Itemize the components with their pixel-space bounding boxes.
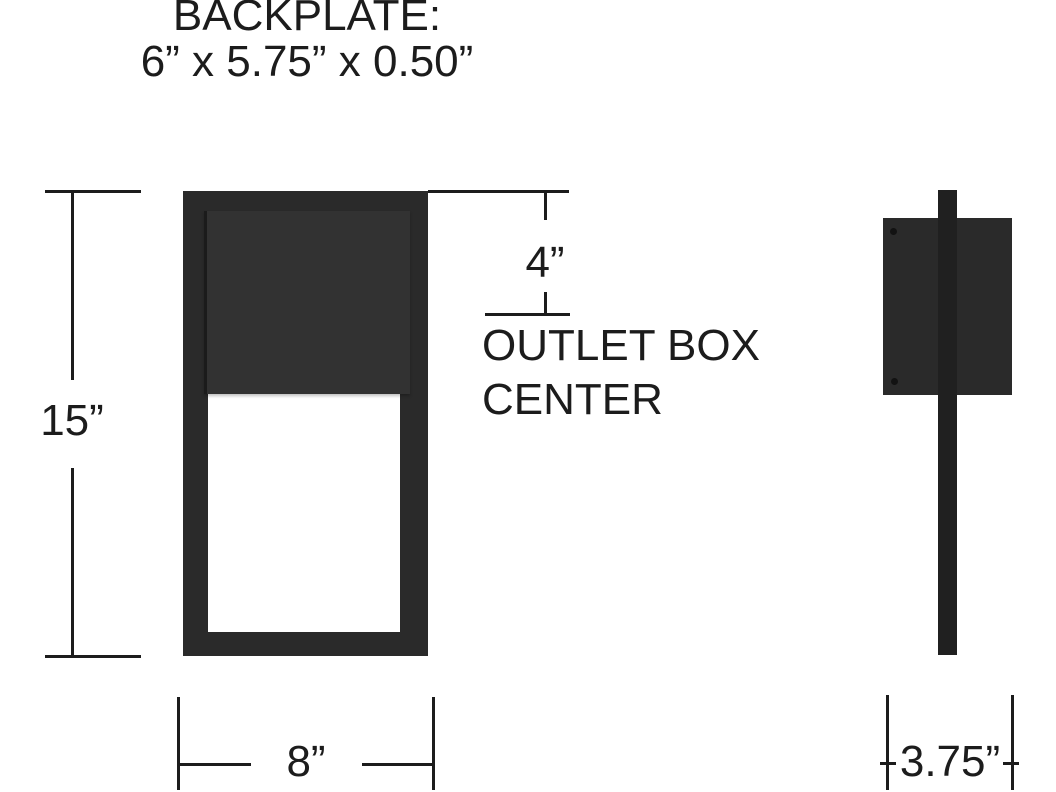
backplate-title-line2: 6” x 5.75” x 0.50” <box>95 39 519 85</box>
outlet-center-line <box>485 313 570 316</box>
dimension-diagram: BACKPLATE: 6” x 5.75” x 0.50” 15” 4” OUT… <box>0 0 1056 792</box>
backplate-title: BACKPLATE: 6” x 5.75” x 0.50” <box>95 0 519 85</box>
dim-height-tick-bottom <box>45 655 141 658</box>
front-view-shield-panel <box>204 211 410 394</box>
dim-offset-line-top <box>428 190 569 193</box>
dim-height-tick-top <box>45 190 141 193</box>
dim-offset-label: 4” <box>495 238 595 289</box>
dim-width-line-left <box>177 763 251 766</box>
side-view-frame-bar <box>938 190 957 655</box>
dim-height-label: 15” <box>12 396 132 447</box>
backplate-title-line1: BACKPLATE: <box>95 0 519 39</box>
dim-depth-tick-right <box>1011 695 1014 790</box>
dim-depth-label: 3.75” <box>890 737 1010 788</box>
dim-height-line-lower <box>71 468 74 657</box>
outlet-box-caption-line2: CENTER <box>482 373 760 427</box>
outlet-box-caption-line1: OUTLET BOX <box>482 319 760 373</box>
dim-width-tick-left <box>177 697 180 790</box>
front-view-diffuser <box>208 394 400 632</box>
outlet-box-caption: OUTLET BOX CENTER <box>482 319 760 427</box>
dim-width-tick-right <box>432 697 435 790</box>
screw-icon <box>890 228 897 235</box>
dim-depth-tick-left <box>886 695 889 790</box>
dim-height-line-upper <box>71 190 74 380</box>
dim-offset-tick-bottom <box>544 292 547 315</box>
dim-width-line-right <box>362 763 435 766</box>
screw-icon <box>891 378 898 385</box>
dim-width-label: 8” <box>256 737 356 788</box>
dim-offset-tick-top <box>544 190 547 220</box>
